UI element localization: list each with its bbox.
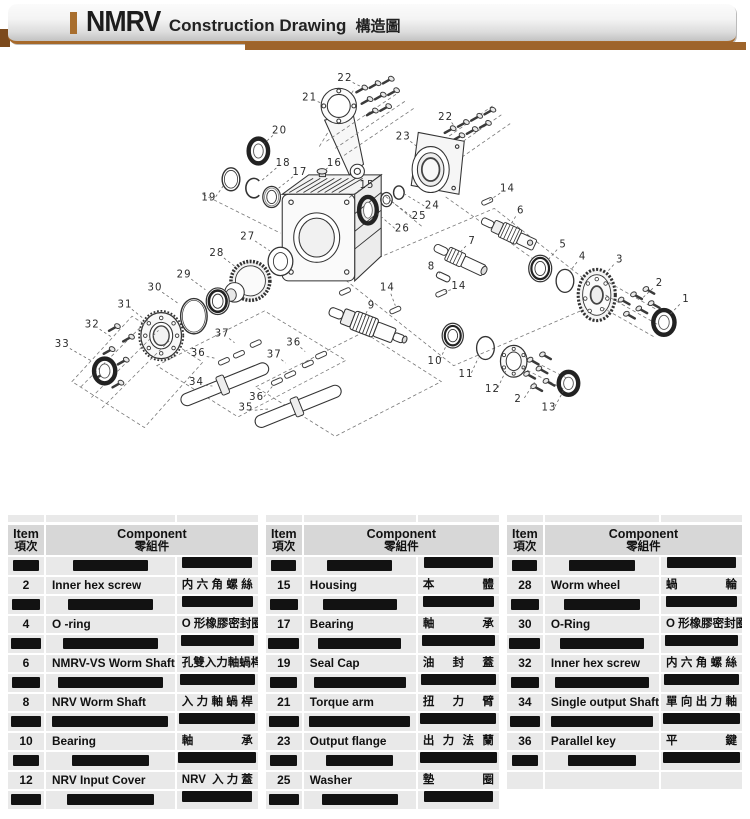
redaction-bar (420, 713, 496, 724)
redaction-bar (512, 560, 537, 571)
item-cell (8, 752, 44, 770)
leader-line (224, 258, 236, 267)
redaction-bar (63, 638, 158, 649)
component-zh-cell (661, 635, 742, 653)
item-cell (507, 674, 543, 692)
leader-line (391, 294, 395, 306)
redaction-bar (560, 638, 644, 649)
table-row: 34Single output Shaft單向出力軸 (507, 694, 742, 712)
leader-line (510, 216, 516, 225)
item-number: 36 (518, 734, 531, 748)
part-label: 36 (191, 348, 206, 359)
part-label: 12 (485, 384, 500, 395)
input-side-rings-drawing (222, 139, 280, 208)
item-cell: 30 (507, 616, 543, 634)
part-label: 28 (209, 248, 224, 259)
item-cell (266, 791, 302, 809)
item-cell: 36 (507, 733, 543, 751)
item-cell: 32 (507, 655, 543, 673)
component-zh-cell: 内六角螺絲 (177, 577, 258, 595)
component-name-zh: 出力法蘭 (418, 733, 499, 751)
component-en-cell: Inner hex screw (545, 655, 659, 673)
component-name-zh: 蝸輪 (661, 577, 742, 595)
component-en-cell: Bearing (46, 733, 175, 751)
strip-cell (545, 515, 659, 522)
leader-line (669, 304, 680, 315)
component-name-zh: 墊圈 (418, 772, 499, 790)
redaction-bar (11, 794, 41, 805)
leader-line (353, 82, 361, 86)
item-header: Item項次 (8, 525, 44, 555)
component-name-en: Washer (304, 773, 352, 787)
part-label: 15 (360, 180, 375, 191)
redaction-bar (13, 755, 40, 766)
component-zh-cell (177, 791, 258, 809)
part-label: 23 (396, 132, 411, 143)
item-cell (507, 635, 543, 653)
item-number: 28 (518, 578, 531, 592)
component-name-zh: O 形橡膠密封圈 (177, 616, 258, 634)
component-zh-cell: 墊圈 (418, 772, 499, 790)
redaction-bar (12, 599, 40, 610)
part-label: 6 (517, 206, 525, 217)
component-en-cell (46, 635, 175, 653)
strip-cell (418, 515, 499, 522)
item-cell (507, 713, 543, 731)
item-number: 10 (19, 734, 32, 748)
component-name-zh: 内六角螺絲 (661, 655, 742, 673)
leader-line (524, 382, 535, 398)
item-cell: 10 (8, 733, 44, 751)
part-label: 21 (302, 93, 317, 104)
part-label: 36 (249, 392, 264, 403)
table-row: 10Bearing軸承 (8, 733, 258, 751)
component-name-zh: 扭力臂 (418, 694, 499, 712)
item-cell (266, 635, 302, 653)
component-name-zh: O 形橡膠密封圈 (661, 616, 742, 634)
part-label: 5 (559, 239, 567, 250)
item-cell (507, 557, 543, 575)
component-name-zh: 内六角螺絲 (177, 577, 258, 595)
component-zh-cell (418, 713, 499, 731)
part-label: 13 (542, 403, 557, 414)
component-en-cell: Washer (304, 772, 416, 790)
table-row (8, 596, 258, 614)
redaction-bar (68, 599, 153, 610)
component-en-cell: NMRV-VS Worm Shaft (46, 655, 175, 673)
parts-table: Item項次Component零組件2Inner hex screw内六角螺絲4… (8, 515, 742, 809)
redaction-bar (510, 716, 540, 727)
component-zh-cell (418, 752, 499, 770)
part-label: 27 (240, 231, 255, 242)
component-name-en: NRV Input Cover (46, 773, 146, 787)
table-row (266, 596, 499, 614)
part-label: 34 (189, 377, 204, 388)
item-cell: 21 (266, 694, 302, 712)
item-number: 25 (277, 773, 290, 787)
component-zh-cell (661, 713, 742, 731)
redaction-bar (180, 674, 255, 685)
component-en-cell (304, 557, 416, 575)
table-header-row: Item項次Component零組件 (266, 525, 499, 555)
table-group: Item項次Component零組件2Inner hex screw内六角螺絲4… (8, 515, 258, 809)
part-label: 8 (428, 261, 436, 272)
redaction-bar (11, 638, 42, 649)
component-en-cell (304, 752, 416, 770)
item-cell: 15 (266, 577, 302, 595)
component-zh-cell: O 形橡膠密封圈 (661, 616, 742, 634)
component-en-cell (46, 674, 175, 692)
component-header: Component零組件 (46, 525, 258, 555)
component-zh-cell: 軸承 (177, 733, 258, 751)
component-en-cell (545, 635, 659, 653)
strip-cell (304, 515, 416, 522)
table-row (266, 674, 499, 692)
redaction-bar (318, 638, 401, 649)
component-zh-cell (418, 557, 499, 575)
item-number: 30 (518, 617, 531, 631)
item-cell (266, 557, 302, 575)
part-label: 19 (201, 192, 216, 203)
redaction-bar (509, 638, 540, 649)
part-label: 22 (438, 112, 453, 123)
redaction-bar (13, 560, 38, 571)
redaction-bar (327, 560, 392, 571)
redaction-bar (551, 716, 654, 727)
redaction-bar (73, 560, 148, 571)
item-cell (8, 596, 44, 614)
item-number: 8 (23, 695, 30, 709)
table-group: Item項次Component零組件15Housing本體17Bearing軸承… (266, 515, 499, 809)
strip-cell (46, 515, 175, 522)
redaction-bar (424, 791, 494, 802)
redaction-bar (72, 755, 149, 766)
item-cell (8, 557, 44, 575)
part-label: 30 (147, 283, 162, 294)
component-en-cell (545, 772, 659, 790)
table-row (507, 791, 742, 809)
double-output-shaft-drawing (252, 380, 344, 432)
component-name-zh: 油封蓋 (418, 655, 499, 673)
component-zh-cell: 入力軸蝸桿 (177, 694, 258, 712)
table-row: 4O -ringO 形橡膠密封圈 (8, 616, 258, 634)
component-name-zh: 軸承 (177, 733, 258, 751)
redaction-bar (511, 599, 539, 610)
part-label: 25 (412, 211, 427, 222)
redaction-bar (11, 716, 41, 727)
brand-title: NMRV (86, 6, 160, 39)
component-en-cell (46, 557, 175, 575)
redaction-bar (179, 713, 255, 724)
component-en-cell (304, 596, 416, 614)
worm-side-cover-assembly-drawing (529, 255, 675, 337)
ring-24-25-drawing (381, 186, 404, 207)
table-row (507, 772, 742, 790)
bearing-support-drawing (139, 311, 183, 360)
item-cell (507, 752, 543, 770)
component-zh-cell (661, 772, 742, 790)
redaction-bar (323, 599, 397, 610)
part-label: 7 (468, 236, 476, 247)
part-label: 29 (177, 269, 192, 280)
component-zh-cell: 扭力臂 (418, 694, 499, 712)
table-row: 32Inner hex screw内六角螺絲 (507, 655, 742, 673)
component-en-cell (545, 713, 659, 731)
redaction-bar (555, 677, 649, 688)
leader-line (489, 193, 500, 200)
table-row (507, 713, 742, 731)
table-row (266, 635, 499, 653)
part-label: 10 (428, 356, 443, 367)
input-cover-assembly-drawing (442, 323, 578, 395)
table-row (266, 557, 499, 575)
component-name-zh: 單向出力軸 (661, 694, 742, 712)
component-en-cell (304, 674, 416, 692)
component-zh-cell: 孔雙入力軸蝸桿 (177, 655, 258, 673)
component-en-cell: NRV Input Cover (46, 772, 175, 790)
component-en-cell (304, 791, 416, 809)
leader-line (281, 360, 285, 363)
component-zh-cell: O 形橡膠密封圈 (177, 616, 258, 634)
component-name-en: NRV Worm Shaft (46, 695, 146, 709)
item-number: 17 (277, 617, 290, 631)
redaction-bar (269, 716, 299, 727)
table-header-row: Item項次Component零組件 (507, 525, 742, 555)
component-zh-cell (177, 596, 258, 614)
part-label: 17 (292, 167, 307, 178)
component-en-cell: Bearing (304, 616, 416, 634)
redaction-bar (67, 794, 155, 805)
table-row: 12NRV Input CoverNRV 入力蓋 (8, 772, 258, 790)
redaction-bar (269, 794, 299, 805)
item-cell: 4 (8, 616, 44, 634)
table-row (8, 791, 258, 809)
item-cell: 23 (266, 733, 302, 751)
leader-line (70, 349, 91, 361)
component-zh-cell (177, 557, 258, 575)
redaction-bar (422, 635, 495, 646)
table-row: 23Output flange出力法蘭 (266, 733, 499, 751)
oil-seal-33-drawing (94, 359, 115, 384)
component-name-en: Single output Shaft (545, 695, 659, 709)
item-number: 19 (277, 656, 290, 670)
worm-shaft-6-drawing (479, 213, 539, 252)
table-row (507, 752, 742, 770)
item-cell: 34 (507, 694, 543, 712)
item-cell (8, 713, 44, 731)
component-zh-cell (177, 635, 258, 653)
component-name-zh: 軸承 (418, 616, 499, 634)
component-en-cell (46, 752, 175, 770)
item-number: 21 (277, 695, 290, 709)
redaction-bar (326, 755, 393, 766)
redaction-bar (271, 560, 296, 571)
component-zh-cell: 内六角螺絲 (661, 655, 742, 673)
component-zh-cell: 單向出力軸 (661, 694, 742, 712)
redaction-bar (270, 755, 297, 766)
item-cell (507, 772, 543, 790)
component-zh-cell (177, 674, 258, 692)
table-row: 2Inner hex screw内六角螺絲 (8, 577, 258, 595)
leader-line (261, 168, 276, 181)
part-label: 33 (55, 339, 70, 350)
table-row: 25Washer墊圈 (266, 772, 499, 790)
redaction-bar (423, 596, 494, 607)
component-en-cell: NRV Worm Shaft (46, 694, 175, 712)
table-row: 17Bearing軸承 (266, 616, 499, 634)
component-name-en: O-Ring (545, 617, 590, 631)
component-name-en: Worm wheel (545, 578, 620, 592)
leader-line (229, 338, 234, 342)
leader-line (162, 292, 179, 304)
item-cell (8, 674, 44, 692)
redaction-bar (569, 560, 635, 571)
part-label: 2 (656, 278, 664, 289)
part-label: 20 (272, 125, 287, 136)
table-row: 19Seal Cap油封蓋 (266, 655, 499, 673)
component-name-zh: 孔雙入力軸蝸桿 (177, 655, 258, 673)
table-group: Item項次Component零組件28Worm wheel蝸輪30O-Ring… (507, 515, 742, 809)
item-number: 34 (518, 695, 531, 709)
redaction-bar (270, 677, 297, 688)
redaction-bar (568, 755, 636, 766)
component-en-cell (46, 791, 175, 809)
redaction-bar (182, 791, 252, 802)
exploded-view-drawing: 1223456789101112131414141516171819202122… (0, 60, 750, 515)
leader-line (255, 241, 270, 251)
component-zh-cell (418, 791, 499, 809)
table-row (8, 635, 258, 653)
part-label: 31 (117, 299, 132, 310)
table-row: 21Torque arm扭力臂 (266, 694, 499, 712)
redaction-bar (322, 794, 398, 805)
strip-cell (266, 515, 302, 522)
component-name-en: Seal Cap (304, 656, 360, 670)
strip-cell (507, 515, 543, 522)
leader-line (606, 265, 613, 273)
part-label: 14 (380, 283, 395, 294)
table-row: 28Worm wheel蝸輪 (507, 577, 742, 595)
component-zh-cell: NRV 入力蓋 (177, 772, 258, 790)
item-number: 15 (277, 578, 290, 592)
leader-line (255, 409, 269, 410)
leader-line (207, 356, 217, 358)
header-underbar (245, 42, 746, 50)
redaction-bar (178, 752, 256, 763)
part-label: 1 (682, 294, 690, 305)
table-row (507, 674, 742, 692)
table-top-strip (507, 515, 742, 522)
leader-line (191, 279, 205, 290)
redaction-bar (564, 599, 639, 610)
component-name-en: Inner hex screw (46, 578, 141, 592)
component-en-cell (46, 596, 175, 614)
item-cell: 2 (8, 577, 44, 595)
component-name-zh: 入力軸蝸桿 (177, 694, 258, 712)
redaction-bar (181, 635, 254, 646)
component-name-zh: 本體 (418, 577, 499, 595)
redaction-bar (512, 755, 539, 766)
component-en-cell: Parallel key (545, 733, 659, 751)
redaction-bar (58, 677, 164, 688)
redaction-bar (511, 677, 538, 688)
redaction-bar (268, 638, 299, 649)
redaction-bar (420, 752, 498, 763)
component-en-cell: Torque arm (304, 694, 416, 712)
component-header: Component零組件 (545, 525, 742, 555)
table-row (507, 596, 742, 614)
part-label: 9 (368, 300, 376, 311)
item-cell: 28 (507, 577, 543, 595)
component-name-en: Bearing (46, 734, 96, 748)
redaction-bar (663, 713, 739, 724)
component-en-cell (545, 557, 659, 575)
component-en-cell: Output flange (304, 733, 416, 751)
part-label: 35 (238, 403, 253, 414)
component-zh-cell (418, 596, 499, 614)
item-number: 32 (518, 656, 531, 670)
item-cell (266, 713, 302, 731)
component-zh-cell: 蝸輪 (661, 577, 742, 595)
component-en-cell (545, 674, 659, 692)
table-row: 36Parallel key平鍵 (507, 733, 742, 751)
component-name-en: Inner hex screw (545, 656, 640, 670)
table-row (266, 791, 499, 809)
page-title-en: Construction Drawing (169, 16, 347, 36)
item-header: Item項次 (266, 525, 302, 555)
part-label: 36 (286, 337, 301, 348)
header-band: NMRV Construction Drawing 構造圖 (8, 4, 736, 44)
component-zh-cell: 油封蓋 (418, 655, 499, 673)
item-cell (266, 674, 302, 692)
table-row: 8NRV Worm Shaft入力軸蝸桿 (8, 694, 258, 712)
component-name-zh: NRV 入力蓋 (177, 772, 258, 790)
component-header: Component零組件 (304, 525, 499, 555)
pin-8-drawing (436, 271, 451, 283)
component-zh-cell (177, 713, 258, 731)
strip-cell (8, 515, 44, 522)
item-cell: 12 (8, 772, 44, 790)
part-label: 37 (267, 350, 282, 361)
item-number: 6 (23, 656, 30, 670)
component-name-en: Housing (304, 578, 357, 592)
table-row (507, 557, 742, 575)
component-name-zh: 平鍵 (661, 733, 742, 751)
redaction-bar (182, 596, 253, 607)
component-zh-cell (661, 596, 742, 614)
component-en-cell (545, 596, 659, 614)
item-number: 12 (19, 773, 32, 787)
item-cell: 17 (266, 616, 302, 634)
page-title-zh: 構造圖 (355, 15, 400, 36)
component-zh-cell: 軸承 (418, 616, 499, 634)
part-label: 16 (327, 158, 342, 169)
leader-line (405, 194, 424, 206)
header-accent-bar (70, 12, 77, 34)
component-name-en: Bearing (304, 617, 354, 631)
component-zh-cell (661, 752, 742, 770)
component-zh-cell (418, 674, 499, 692)
component-en-cell (304, 713, 416, 731)
table-row (266, 752, 499, 770)
table-row (8, 674, 258, 692)
component-zh-cell (418, 635, 499, 653)
part-label: 22 (337, 73, 352, 84)
strip-cell (177, 515, 258, 522)
component-en-cell: Inner hex screw (46, 577, 175, 595)
redaction-bar (665, 635, 738, 646)
output-flange-23-drawing (411, 132, 464, 194)
